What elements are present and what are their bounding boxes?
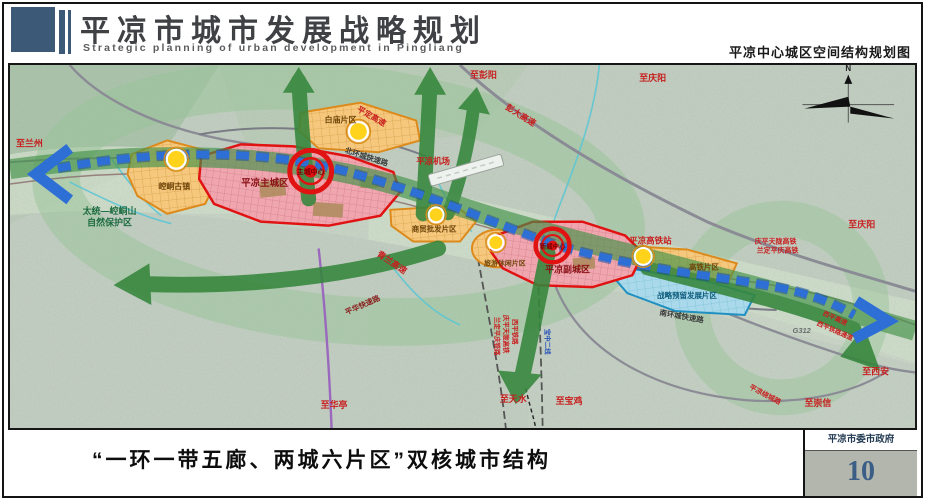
label-new-center: 新城中心	[540, 241, 566, 250]
compass-n-label: N	[845, 65, 851, 73]
label-landing-railway-v: 兰定平庆铁路	[493, 317, 502, 356]
label-hsr-station: 平凉高铁站	[629, 236, 672, 246]
label-zone-wholesale: 商贸批发片区	[412, 224, 457, 234]
footer: “一环一带五廊、两城六片区”双核城市结构 平凉市委市政府 10	[4, 430, 921, 496]
label-zone-hsr: 高铁片区	[689, 261, 719, 271]
label-to-huating: 至华亭	[321, 399, 348, 410]
label-airport: 平凉机场	[416, 156, 450, 166]
label-nature-reserve-1: 太统—崆峒山	[83, 205, 137, 216]
stamp-box: 平凉市委市政府 10	[803, 430, 917, 496]
label-qingping-hsr-v: 庆平天陇高铁	[502, 314, 511, 354]
label-to-tianshui: 至天水	[500, 393, 528, 404]
agency-name: 平凉市委市政府	[805, 430, 917, 451]
header-accent-bar	[59, 10, 65, 54]
label-zone-kongtong: 崆峒古镇	[158, 181, 190, 191]
label-to-pengyang: 至彭阳	[470, 69, 497, 80]
structure-caption: “一环一带五廊、两城六片区”双核城市结构	[92, 444, 551, 474]
label-zone-sub-city: 平凉副城区	[545, 263, 590, 274]
label-baozhong-line2: 宝中二线	[544, 329, 553, 355]
label-g312: G312	[793, 326, 812, 335]
label-to-qingyang-top: 至庆阳	[639, 72, 666, 83]
label-zone-main-city: 平凉主城区	[241, 177, 289, 189]
page-title-english: Strategic planning of urban development …	[83, 42, 464, 54]
header-accent-square	[11, 7, 55, 52]
label-to-baoji: 至宝鸡	[556, 395, 583, 406]
map-canvas: N 崆峒古镇 白庙片区 平凉主城区 主城中心 商贸批发片区 旅游休闲片区 平凉副…	[10, 65, 915, 428]
label-nature-reserve-2: 自然保护区	[87, 217, 132, 228]
header-accent-bar-thin	[68, 10, 71, 54]
label-zone-baimiao: 白庙片区	[325, 115, 357, 125]
planning-slide: 平凉市城市发展战略规划 Strategic planning of urban …	[0, 0, 925, 500]
header: 平凉市城市发展战略规划 Strategic planning of urban …	[0, 0, 925, 62]
map-subtitle: 平凉中心城区空间结构规划图	[729, 42, 911, 61]
label-zone-leisure: 旅游休闲片区	[483, 258, 526, 267]
page-number: 10	[805, 451, 917, 496]
label-landing-hsr: 兰定平庆高铁	[757, 245, 799, 254]
label-xiping-railway-v: 西平铁路	[511, 319, 520, 345]
label-to-lanzhou: 至兰州	[16, 137, 43, 148]
label-to-xian: 至西安	[862, 365, 889, 376]
label-to-qingyang-right: 至庆阳	[848, 219, 875, 230]
label-main-center: 主城中心	[297, 167, 325, 176]
label-zone-reserve: 战略预留发展片区	[657, 290, 717, 300]
label-qingping-hsr: 庆平天陇高铁	[754, 237, 797, 246]
label-to-chongxin: 至崇信	[804, 397, 831, 408]
planning-map: N 崆峒古镇 白庙片区 平凉主城区 主城中心 商贸批发片区 旅游休闲片区 平凉副…	[8, 63, 917, 430]
